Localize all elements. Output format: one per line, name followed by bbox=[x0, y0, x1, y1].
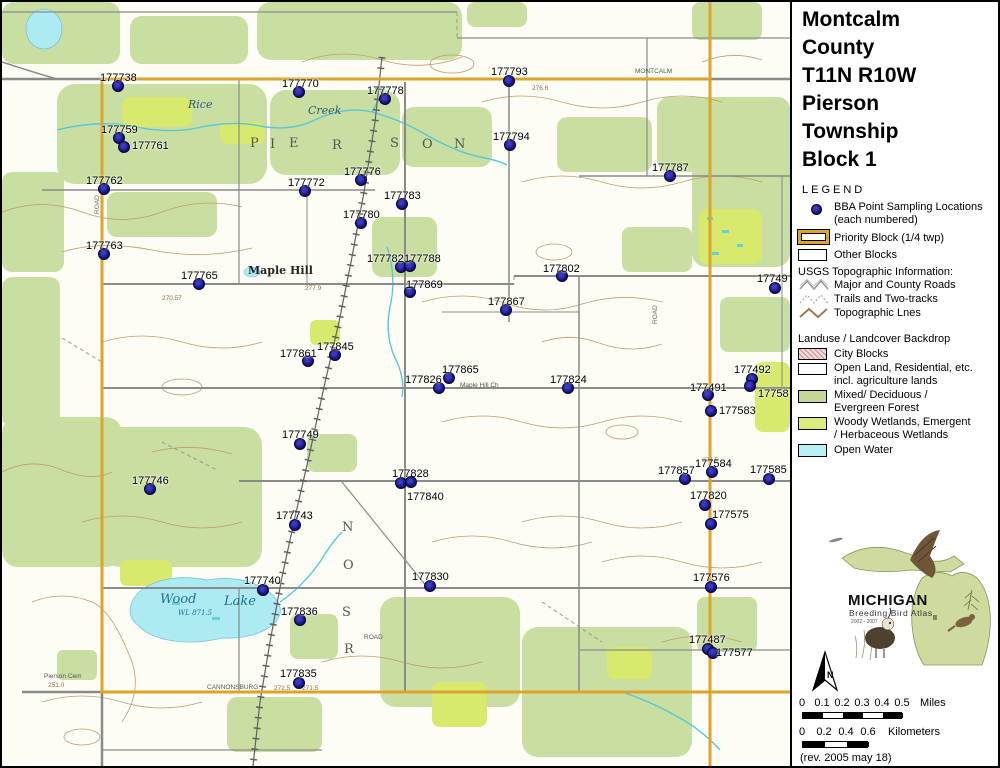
map-annotation: O bbox=[422, 137, 433, 152]
bba-point-label-177778: 177778 bbox=[367, 85, 404, 97]
trails-icon bbox=[798, 293, 830, 305]
usgs-heading: USGS Topographic Information: bbox=[798, 266, 953, 278]
north-arrow-letter: N bbox=[827, 670, 834, 680]
legend-panel: Montcalm County T11N R10W Pierson Townsh… bbox=[790, 2, 1000, 766]
bba-point-label-177793: 177793 bbox=[491, 66, 528, 78]
bba-point-label-177759: 177759 bbox=[101, 124, 138, 136]
bba-point-177761 bbox=[118, 141, 130, 153]
hawk-illustration bbox=[910, 530, 940, 578]
priority-block-swatch bbox=[798, 230, 829, 244]
bba-point-label-177869: 177869 bbox=[406, 279, 443, 291]
bba-point-label-177738: 177738 bbox=[100, 72, 137, 84]
km-unit: Kilometers bbox=[888, 726, 940, 738]
logo-subtitle: Breeding Bird Atlas bbox=[849, 608, 933, 618]
major-roads-icon bbox=[798, 279, 830, 291]
map-annotation: Maple Hill bbox=[248, 264, 313, 277]
km-tick: 0.2 bbox=[816, 726, 831, 738]
bba-point-label-177788: 177788 bbox=[404, 253, 441, 265]
landuse-heading: Landuse / Landcover Backdrop bbox=[798, 333, 950, 345]
other-blocks-swatch bbox=[798, 249, 827, 261]
bba-point-label-177761: 177761 bbox=[132, 140, 169, 152]
bba-point-label-177776: 177776 bbox=[344, 166, 381, 178]
open-water-swatch bbox=[798, 444, 827, 457]
km-tick: 0.6 bbox=[860, 726, 875, 738]
city-blocks-label: City Blocks bbox=[834, 348, 888, 360]
title-line-3: T11N R10W bbox=[802, 62, 916, 90]
bba-point-label-17749: 17749 bbox=[757, 273, 788, 285]
title-line-4: Pierson bbox=[802, 90, 916, 118]
bba-point-label-177770: 177770 bbox=[282, 78, 319, 90]
bba-point-label-177585: 177585 bbox=[750, 464, 787, 476]
map-annotation: O bbox=[343, 558, 354, 573]
map-title: Montcalm County T11N R10W Pierson Townsh… bbox=[802, 6, 916, 174]
map-annotation: 272.5 bbox=[274, 685, 290, 692]
bba-point-label-177577: 177577 bbox=[716, 647, 753, 659]
topographic-lines-icon bbox=[798, 307, 830, 319]
open-land-swatch bbox=[798, 363, 827, 375]
topo-map: RiceCreekPIERSONNOSRMaple HillWoodLakeWL… bbox=[2, 2, 790, 766]
city-blocks-swatch bbox=[798, 348, 827, 360]
bba-point-label-177772: 177772 bbox=[288, 177, 325, 189]
miles-tick: 0 bbox=[799, 697, 805, 709]
map-annotation: S bbox=[390, 136, 399, 151]
bba-point-legend-label: BBA Point Sampling Locations bbox=[834, 201, 983, 213]
miles-tick: 0.4 bbox=[874, 697, 889, 709]
miles-bar bbox=[802, 712, 902, 719]
bba-point-label-177576: 177576 bbox=[693, 572, 730, 584]
map-annotation: ROAD bbox=[652, 305, 659, 324]
bba-point-17758 bbox=[744, 380, 756, 392]
km-tick: 0 bbox=[799, 726, 805, 738]
map-annotation: 271.5 bbox=[302, 685, 318, 692]
bba-point-label-177782: 177782 bbox=[367, 253, 404, 265]
bba-point-label-177780: 177780 bbox=[343, 209, 380, 221]
bba-point-label-177743: 177743 bbox=[276, 510, 313, 522]
priority-block-label: Priority Block (1/4 twp) bbox=[834, 232, 944, 244]
revision-note: (rev. 2005 may 18) bbox=[800, 752, 892, 764]
miles-tick: 0.2 bbox=[834, 697, 849, 709]
map-annotation: ROAD bbox=[94, 195, 101, 214]
bba-point-label-177487: 177487 bbox=[689, 634, 726, 646]
logo-name: MICHIGAN bbox=[848, 592, 928, 609]
map-annotation: I bbox=[270, 137, 275, 152]
title-line-1: Montcalm bbox=[802, 6, 916, 34]
bba-point-label-177765: 177765 bbox=[181, 270, 218, 282]
map-annotation: WL 871.5 bbox=[178, 609, 212, 617]
mixed-forest-label: Mixed/ Deciduous / bbox=[834, 389, 928, 401]
map-annotation: Lake bbox=[224, 594, 256, 609]
title-line-5: Township bbox=[802, 118, 916, 146]
map-annotation: N bbox=[454, 137, 465, 152]
miles-tick: 0.1 bbox=[814, 697, 829, 709]
trails-label: Trails and Two-tracks bbox=[834, 293, 938, 305]
topographic-lines-label: Topographic Lnes bbox=[834, 307, 921, 319]
map-annotation: 276.6 bbox=[532, 85, 548, 92]
bba-point-label-17758: 17758 bbox=[758, 388, 789, 400]
bba-point-label-177746: 177746 bbox=[132, 475, 169, 487]
title-line-2: County bbox=[802, 34, 916, 62]
map-annotation: Maple Hill Ch bbox=[460, 382, 499, 389]
bba-point-label-177740: 177740 bbox=[244, 575, 281, 587]
bba-point-legend-label-2: (each numbered) bbox=[834, 214, 918, 226]
bba-point-177583 bbox=[705, 405, 717, 417]
map-annotation: Wood bbox=[160, 592, 196, 607]
bba-point-label-177867: 177867 bbox=[488, 296, 525, 308]
map-annotation: Rice bbox=[188, 98, 212, 111]
bba-point-label-177845: 177845 bbox=[317, 341, 354, 353]
major-roads-label: Major and County Roads bbox=[834, 279, 956, 291]
bba-point-label-177857: 177857 bbox=[658, 465, 695, 477]
bba-point-label-177584: 177584 bbox=[695, 458, 732, 470]
map-annotation: E bbox=[289, 136, 299, 151]
michigan-upper-peninsula bbox=[842, 547, 964, 572]
bba-point-label-177835: 177835 bbox=[280, 668, 317, 680]
bba-point-label-177865: 177865 bbox=[442, 364, 479, 376]
other-blocks-label: Other Blocks bbox=[834, 249, 897, 261]
bba-point-label-177861: 177861 bbox=[280, 348, 317, 360]
open-land-label-2: incl. agriculture lands bbox=[834, 375, 937, 387]
bba-point-label-177575: 177575 bbox=[712, 509, 749, 521]
miles-tick: 0.5 bbox=[894, 697, 909, 709]
bba-point-label-177820: 177820 bbox=[690, 490, 727, 502]
miles-tick: 0.3 bbox=[854, 697, 869, 709]
bba-point-label-177787: 177787 bbox=[652, 162, 689, 174]
km-bar bbox=[802, 741, 868, 748]
title-line-6: Block 1 bbox=[802, 146, 916, 174]
bba-point-label-177491: 177491 bbox=[690, 382, 727, 394]
mixed-forest-swatch bbox=[798, 390, 827, 403]
miles-unit: Miles bbox=[920, 697, 946, 709]
map-sheet: RiceCreekPIERSONNOSRMaple HillWoodLakeWL… bbox=[0, 0, 1000, 768]
legend-heading: LEGEND bbox=[802, 184, 865, 196]
bba-point-label-177583: 177583 bbox=[719, 405, 756, 417]
bba-point-label-177749: 177749 bbox=[282, 429, 319, 441]
map-annotation: 251.0 bbox=[48, 682, 64, 689]
km-tick: 0.4 bbox=[838, 726, 853, 738]
map-annotation: ROAD bbox=[364, 634, 383, 641]
mixed-forest-label-2: Evergreen Forest bbox=[834, 402, 919, 414]
map-annotation: 277.9 bbox=[305, 285, 321, 292]
open-land-label: Open Land, Residential, etc. bbox=[834, 362, 973, 374]
map-annotation: P bbox=[250, 136, 259, 151]
logo-years: 2002 - 2007 bbox=[851, 619, 878, 625]
logo-numeral: II bbox=[933, 615, 937, 622]
woody-wetlands-label-2: / Herbaceous Wetlands bbox=[834, 429, 948, 441]
woody-wetlands-swatch bbox=[798, 417, 827, 430]
michigan-lower-peninsula bbox=[912, 572, 991, 665]
bba-point-legend-icon bbox=[811, 204, 822, 215]
map-annotation: MONTCALM bbox=[635, 68, 672, 75]
bba-point-label-177824: 177824 bbox=[550, 374, 587, 386]
bba-point-label-177762: 177762 bbox=[86, 175, 123, 187]
bba-point-label-177492: 177492 bbox=[734, 364, 771, 376]
map-annotation: Pierson Cem bbox=[44, 673, 82, 680]
bba-point-label-177783: 177783 bbox=[384, 190, 421, 202]
forest-patches bbox=[2, 2, 790, 757]
bba-point-label-177794: 177794 bbox=[493, 131, 530, 143]
map-annotation: 270.57 bbox=[162, 295, 182, 302]
map-annotation: R bbox=[332, 138, 342, 153]
map-annotation: Creek bbox=[308, 104, 341, 117]
north-arrow: N bbox=[810, 650, 840, 694]
woody-wetlands-label: Woody Wetlands, Emergent bbox=[834, 416, 971, 428]
bba-point-label-177802: 177802 bbox=[543, 263, 580, 275]
map-annotation: R bbox=[344, 642, 354, 657]
bba-point-label-177763: 177763 bbox=[86, 240, 123, 252]
topo-map-art bbox=[2, 2, 790, 766]
map-annotation: CANNONSBURG bbox=[207, 684, 258, 691]
bba-point-label-177830: 177830 bbox=[412, 571, 449, 583]
bba-point-label-177840: 177840 bbox=[407, 491, 444, 503]
map-annotation: N bbox=[342, 520, 353, 535]
bba-point-177840 bbox=[405, 476, 417, 488]
bba-point-label-177836: 177836 bbox=[281, 606, 318, 618]
map-annotation: S bbox=[342, 605, 351, 620]
bba-point-label-177826: 177826 bbox=[405, 374, 442, 386]
open-water-label: Open Water bbox=[834, 444, 893, 456]
